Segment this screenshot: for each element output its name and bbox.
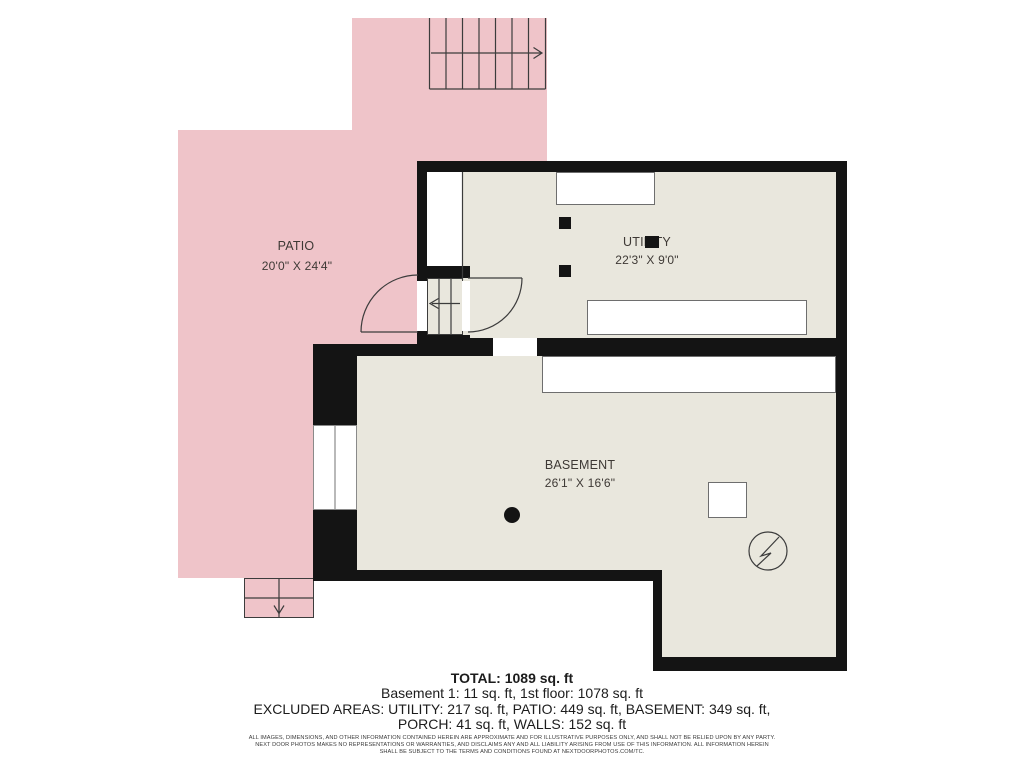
stairs-direction-arrow-right [431,48,542,59]
support-column-dot [504,507,520,523]
excluded-areas-text-1: EXCLUDED AREAS: UTILITY: 217 sq. ft, PAT… [0,702,1024,717]
electrical-meter-icon [749,532,787,570]
utility-door-swing [468,278,522,332]
floorplan-page: PATIO 20'0" X 24'4" UTILITY 22'3" X 9'0"… [0,0,1024,768]
disclaimer-line-2: NEXT DOOR PHOTOS MAKES NO REPRESENTATION… [0,742,1024,749]
disclaimer-text: ALL IMAGES, DIMENSIONS, AND OTHER INFORM… [0,735,1024,756]
disclaimer-line-1: ALL IMAGES, DIMENSIONS, AND OTHER INFORM… [0,735,1024,742]
patio-door-swing [361,275,418,332]
excluded-areas-text-2: PORCH: 41 sq. ft, WALLS: 152 sq. ft [0,717,1024,732]
patio-steps-icon [245,578,313,617]
disclaimer-line-3: SHALL BE SUBJECT TO THE TERMS AND CONDIT… [0,749,1024,756]
area-summary: TOTAL: 1089 sq. ft Basement 1: 11 sq. ft… [0,671,1024,732]
linework-overlay [0,0,1024,768]
stairs-direction-arrow-left [430,299,460,309]
landing-stairs-icon [430,279,460,334]
floor-areas-text: Basement 1: 11 sq. ft, 1st floor: 1078 s… [0,686,1024,701]
stairs-direction-arrow-down [274,599,284,614]
total-area-text: TOTAL: 1089 sq. ft [0,671,1024,686]
stairs-up-icon [430,18,546,89]
